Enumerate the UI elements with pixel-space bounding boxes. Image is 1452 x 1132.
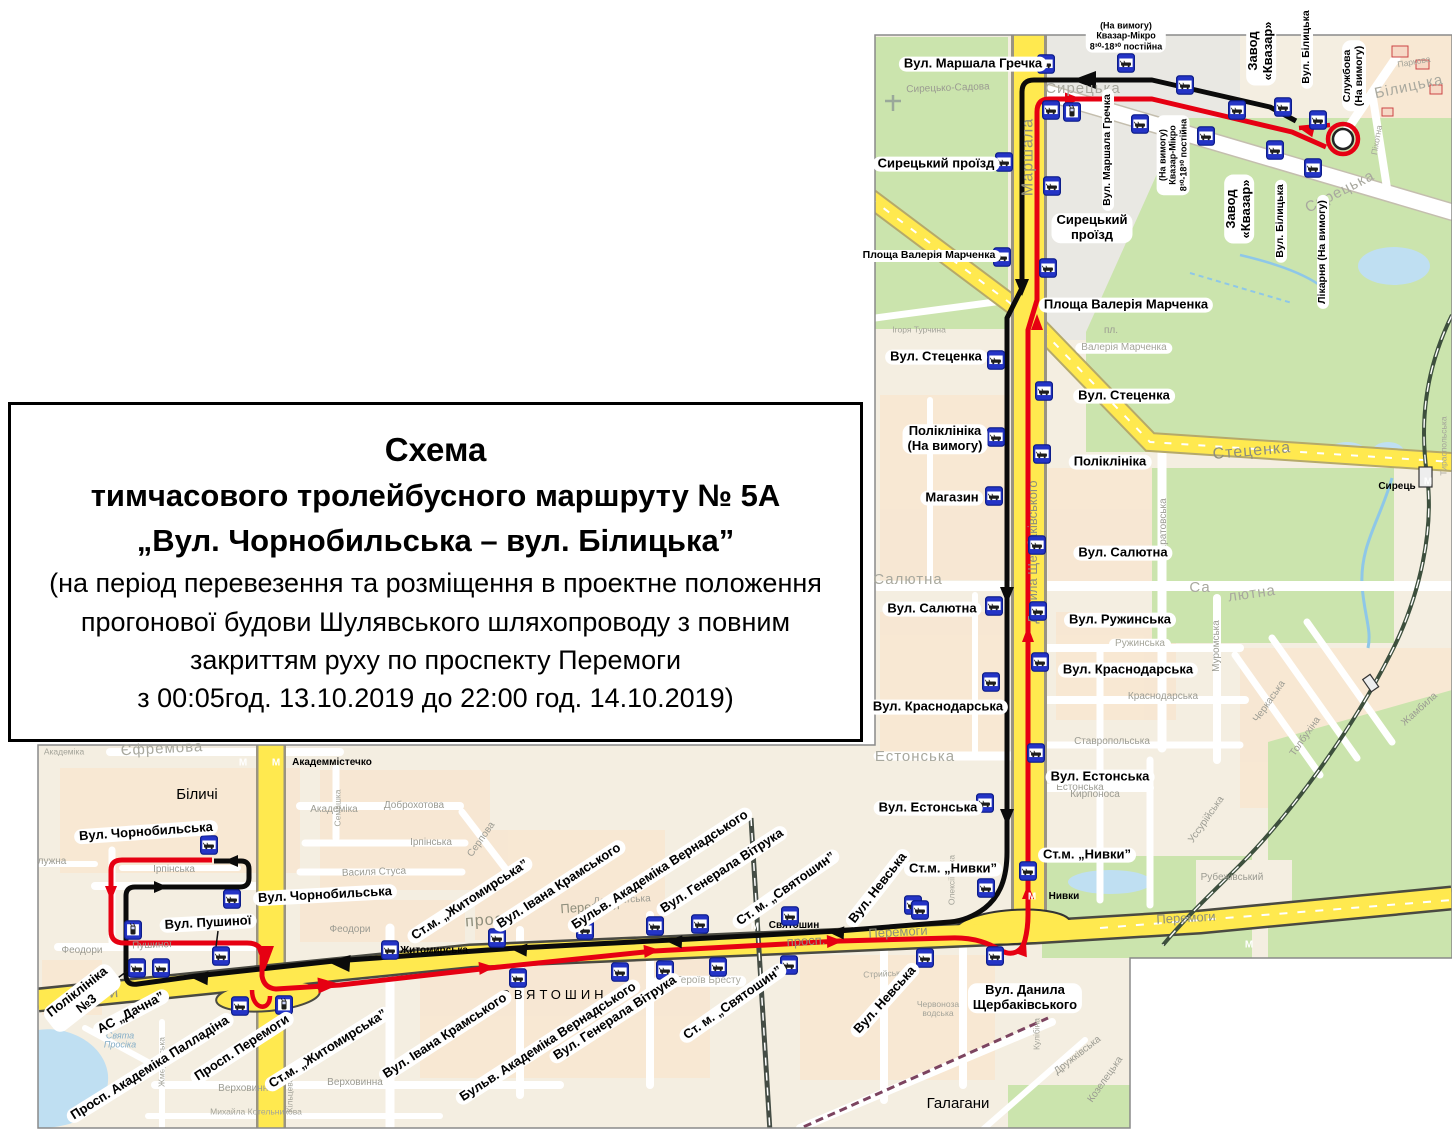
bus-stop-icon <box>1131 114 1149 134</box>
map-text: Феодори <box>329 925 370 936</box>
bus-stop-icon <box>982 672 1000 692</box>
bus-stop-icon <box>1274 97 1292 117</box>
map-text: Ігоря Турчина <box>892 326 946 335</box>
bus-stop-icon <box>1042 100 1060 120</box>
bus-stop-icon <box>987 350 1005 370</box>
bus-stop-icon <box>381 940 399 960</box>
map-text: Муромська <box>1212 620 1223 672</box>
bus-stop-icon <box>916 948 934 968</box>
bus-stop-icon <box>1228 100 1246 120</box>
stop-label: Поліклініка (На вимогу) <box>903 424 988 454</box>
bus-stop-icon <box>1197 126 1215 146</box>
stop-label: (На вимогу) Квазар-Мікро 8³⁰-18³⁰ постій… <box>1086 20 1166 53</box>
stop-label: Площа Валерія Марченка <box>1039 298 1213 313</box>
bus-stop-icon <box>231 996 249 1016</box>
title-line: „Вул. Чорнобильська – вул. Білицька” <box>11 519 860 564</box>
map-text: Перемоги <box>868 924 928 941</box>
bus-stop-icon <box>987 427 1005 447</box>
metro-icon: М <box>1422 476 1435 489</box>
map-text: Ірпінська <box>410 838 452 849</box>
stop-label: Вул. Естонська <box>874 801 983 816</box>
stop-label: Вул. Білицька <box>1301 5 1313 88</box>
bus-stop-icon <box>1304 158 1322 178</box>
stop-label: Вул. Краснодарська <box>868 700 1008 715</box>
bus-stop-icon <box>1033 444 1051 464</box>
bus-stop-icon <box>1029 601 1047 621</box>
map-text: Краснодарська <box>1128 692 1198 703</box>
map-text: Феодори <box>61 946 102 957</box>
bus-stop-icon <box>709 957 727 977</box>
map-text: Василя Стуса <box>342 867 407 880</box>
map-text: просп. <box>786 933 825 949</box>
terminal-stop-icon <box>124 920 142 940</box>
map-text: Естонська <box>875 749 955 765</box>
map-text: Тираспольська <box>1440 416 1449 475</box>
bus-stop-icon <box>1019 861 1037 881</box>
map-text: Семашка <box>334 790 343 827</box>
stop-label: Вул. Стеценка <box>1073 389 1175 404</box>
bus-stop-icon <box>1117 53 1135 73</box>
stop-label: Вул. Маршала Гречка <box>899 57 1047 72</box>
bus-stop-icon <box>646 916 664 936</box>
stop-label: Магазин <box>920 491 983 506</box>
terminal-circle <box>1333 129 1353 149</box>
route-scheme-page: Сирецько-СадоваСирецькаБілицькаСирецькаМ… <box>0 0 1452 1132</box>
map-text: Доброхотова <box>384 801 444 812</box>
map-text: Перемоги <box>1156 910 1216 927</box>
bus-stop-icon <box>611 962 629 982</box>
bus-stop-icon <box>691 914 709 934</box>
map-text: Сирець <box>1378 482 1415 493</box>
map-text: Рубежівський <box>1201 873 1264 884</box>
stop-label: Ст.м. „Нивки” <box>1038 848 1136 863</box>
stop-label: Вул. Краснодарська <box>1058 663 1198 678</box>
map-text: лужна <box>38 857 67 868</box>
map-text: Житомирська <box>400 946 468 957</box>
stop-label: (На вимогу) Квазар-Мікро 8³⁰-18³⁰ постій… <box>1157 115 1190 195</box>
stop-label: Сирецький проїзд <box>1051 213 1132 243</box>
map-text: Кирпоноса <box>1070 790 1120 801</box>
map-text: Галагани <box>927 1096 990 1112</box>
stop-label: Лікарня (На вимогу) <box>1317 195 1329 309</box>
bus-stop-icon <box>1035 381 1053 401</box>
map-text: Біличі <box>176 787 217 803</box>
map-text: Са <box>1189 580 1210 596</box>
stop-label: Вул. Білицька <box>1275 179 1287 262</box>
bus-stop-icon <box>128 958 146 978</box>
bus-stop-icon <box>911 900 929 920</box>
bus-stop-icon <box>977 878 995 898</box>
map-text: Червоноза водська <box>917 1000 959 1018</box>
bus-stop-icon <box>200 835 218 855</box>
title-line: (на період перевезення та розміщення в п… <box>11 564 860 602</box>
bus-stop-icon <box>509 968 527 988</box>
map-text: пл. <box>1104 326 1118 337</box>
bus-stop-icon <box>986 946 1004 966</box>
stop-label: Поліклініка <box>1069 455 1152 470</box>
bus-stop-icon <box>212 946 230 966</box>
bus-stop-icon <box>1043 176 1061 196</box>
map-text: Кулібіна <box>1033 1018 1042 1050</box>
map-text: Ірпінська <box>153 865 195 876</box>
bus-stop-icon <box>1028 535 1046 555</box>
map-text: Академмістечко <box>292 758 372 769</box>
stop-label: Вул. Естонська <box>1046 770 1155 785</box>
map-text: Валерія Марченка <box>1075 343 1172 354</box>
map-text: Ставропольська <box>1074 737 1150 748</box>
metro-icon: М <box>1026 891 1039 904</box>
map-text: Верховинна <box>327 1078 383 1089</box>
map-text: Салютна <box>873 572 943 588</box>
metro-icon: М <box>270 757 283 770</box>
stop-label: Вул. Данила Щербаківського <box>968 983 1082 1013</box>
title-line: з 00:05год. 13.10.2019 до 22:00 год. 14.… <box>11 679 860 717</box>
stop-label: Службова (На вимогу) <box>1342 41 1366 112</box>
bus-stop-icon <box>1266 140 1284 160</box>
stop-label: Завод «Квазар» <box>1246 16 1276 85</box>
stop-label: Вул. Салютна <box>882 602 981 617</box>
map-text: Пушиної <box>132 940 172 952</box>
title-box: Схема тимчасового тролейбусного маршруту… <box>8 402 863 742</box>
bus-stop-icon <box>1039 258 1057 278</box>
bus-stop-icon <box>1176 75 1194 95</box>
bus-stop-icon <box>1309 110 1327 130</box>
stop-label: Вул. Маршала Гречка <box>1102 89 1114 211</box>
bus-stop-icon <box>1027 743 1045 763</box>
map-text: Нивки <box>1049 892 1080 903</box>
stop-label: Завод «Квазар» <box>1224 174 1254 243</box>
stop-label: Ст.м. „Нивки” <box>904 862 1002 877</box>
metro-icon: М <box>237 757 250 770</box>
map-text: Маршала <box>1021 118 1038 196</box>
bus-stop-icon <box>985 486 1003 506</box>
bus-stop-icon <box>781 906 799 926</box>
map-text: Академіка <box>44 748 84 757</box>
map-text: Свята Просіка <box>104 1032 136 1051</box>
title-line: закриттям руху по проспекту Перемоги <box>11 641 860 679</box>
metro-icon: М <box>1243 939 1256 952</box>
bus-stop-icon <box>152 958 170 978</box>
map-text: СВЯТОШИН <box>500 988 607 1002</box>
terminal-stop-icon <box>1063 102 1081 122</box>
stop-label: Площа Валерія Марченка <box>858 250 1001 262</box>
stop-label: Вул. Ружинська <box>1064 613 1176 628</box>
stop-label: Сирецький проїзд <box>873 157 1000 172</box>
stop-label: Вул. Стеценка <box>885 350 987 365</box>
stop-label: Вул. Салютна <box>1073 546 1172 561</box>
bus-stop-icon <box>985 596 1003 616</box>
title-line: Схема <box>11 426 860 474</box>
bus-stop-icon <box>1031 652 1049 672</box>
title-line: прогонової будови Шулявського шляхопрово… <box>11 603 860 641</box>
title-line: тимчасового тролейбусного маршруту № 5А <box>11 474 860 519</box>
bus-stop-icon <box>223 889 241 909</box>
map-text: Ружинська <box>1109 639 1171 650</box>
